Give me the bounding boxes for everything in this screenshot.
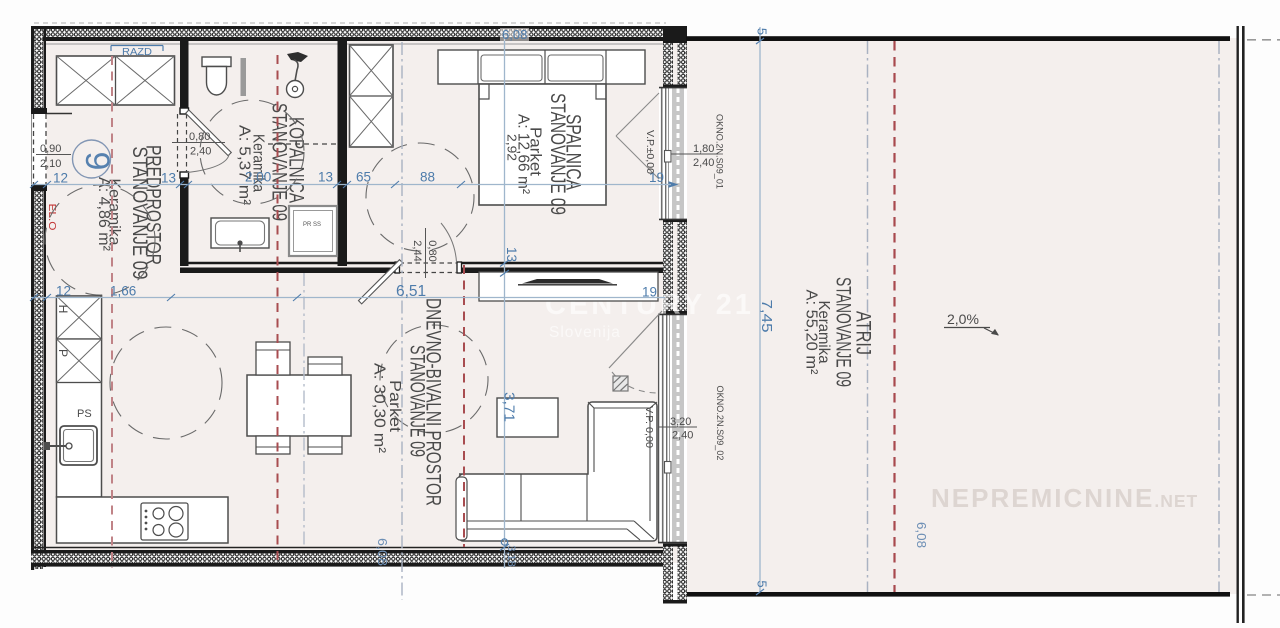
svg-text:0,80: 0,80: [426, 240, 438, 261]
svg-text:12: 12: [53, 171, 68, 186]
svg-text:2,44: 2,44: [411, 240, 423, 261]
svg-text:OKNO.2N.S09_02: OKNO.2N.S09_02: [714, 386, 725, 461]
svg-text:RAZD: RAZD: [122, 46, 152, 58]
svg-text:1,80: 1,80: [693, 143, 714, 155]
svg-text:6,08: 6,08: [502, 27, 527, 42]
svg-text:19: 19: [642, 285, 657, 300]
svg-text:2,10: 2,10: [40, 158, 61, 170]
svg-text:STANOVANJE 09: STANOVANJE 09: [406, 345, 429, 457]
svg-text:6,08: 6,08: [375, 538, 390, 566]
svg-text:13: 13: [161, 171, 176, 186]
svg-text:88: 88: [420, 170, 435, 185]
svg-text:1,66: 1,66: [110, 284, 136, 299]
svg-text:P: P: [56, 349, 70, 357]
svg-text:PR SS: PR SS: [303, 222, 321, 228]
svg-text:2,40: 2,40: [190, 146, 211, 158]
svg-text:2,40: 2,40: [693, 157, 714, 169]
svg-text:A: 5,37 m²: A: 5,37 m²: [236, 125, 253, 206]
svg-text:3,20: 3,20: [670, 416, 691, 428]
svg-text:65: 65: [356, 170, 371, 185]
svg-text:H: H: [56, 305, 70, 314]
svg-text:A: 4,86 m²: A: 4,86 m²: [95, 177, 112, 252]
svg-text:A: 55,20 m²: A: 55,20 m²: [803, 290, 820, 376]
svg-text:STANOVANJE 09: STANOVANJE 09: [832, 277, 855, 387]
svg-text:2,92: 2,92: [505, 134, 520, 161]
svg-text:OKNO.2N.S09_01: OKNO.2N.S09_01: [714, 114, 725, 189]
svg-text:5: 5: [755, 28, 770, 35]
svg-text:6,51: 6,51: [396, 283, 426, 300]
svg-text:13: 13: [504, 247, 519, 262]
svg-text:5: 5: [755, 580, 770, 587]
svg-text:12: 12: [56, 284, 71, 299]
svg-text:Slovenija: Slovenija: [549, 324, 621, 341]
svg-text:V.P.±0,00: V.P.±0,00: [644, 130, 655, 174]
svg-text:2,40: 2,40: [672, 430, 693, 442]
svg-text:V.P. 0,00: V.P. 0,00: [643, 406, 654, 448]
svg-text:2,0%: 2,0%: [947, 311, 979, 327]
svg-text:0,90: 0,90: [40, 143, 61, 155]
svg-text:6,08: 6,08: [914, 522, 929, 548]
svg-text:STANOVANJE 09: STANOVANJE 09: [268, 103, 291, 221]
svg-text:3,18: 3,18: [505, 545, 517, 566]
svg-text:9: 9: [78, 152, 116, 171]
svg-text:Parket: Parket: [386, 380, 403, 433]
svg-text:3,71: 3,71: [501, 392, 518, 422]
svg-text:PS: PS: [77, 408, 92, 420]
svg-text:7,45: 7,45: [758, 300, 775, 333]
svg-text:STANOVANJE 09: STANOVANJE 09: [546, 93, 569, 215]
svg-text:A: 30,30 m²: A: 30,30 m²: [371, 363, 388, 454]
svg-text:0,80: 0,80: [189, 131, 210, 143]
svg-text:13: 13: [318, 170, 333, 185]
svg-text:2,00: 2,00: [245, 170, 271, 185]
